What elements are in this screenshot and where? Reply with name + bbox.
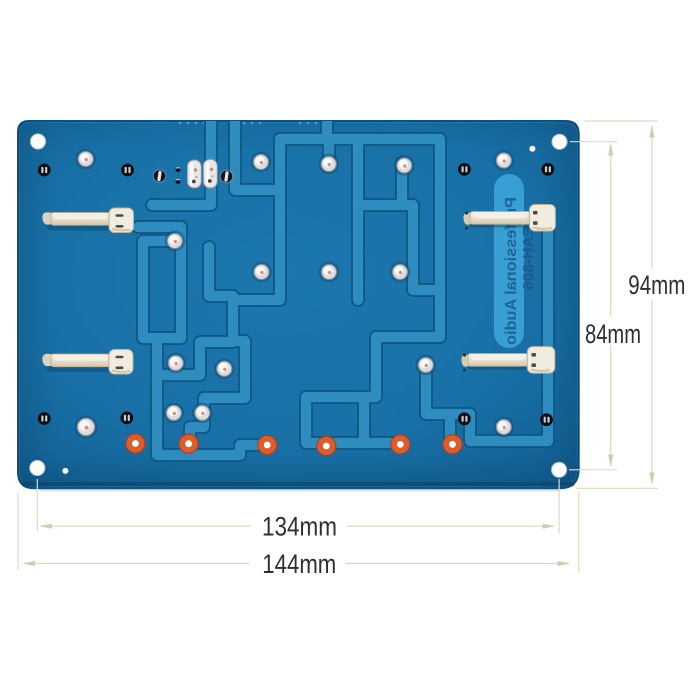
svg-text:84mm: 84mm (585, 319, 641, 349)
svg-text:134mm: 134mm (262, 512, 337, 542)
svg-text:144mm: 144mm (262, 549, 336, 579)
svg-text:94mm: 94mm (628, 270, 685, 300)
svg-text:EAH-806: EAH-806 (520, 226, 537, 290)
